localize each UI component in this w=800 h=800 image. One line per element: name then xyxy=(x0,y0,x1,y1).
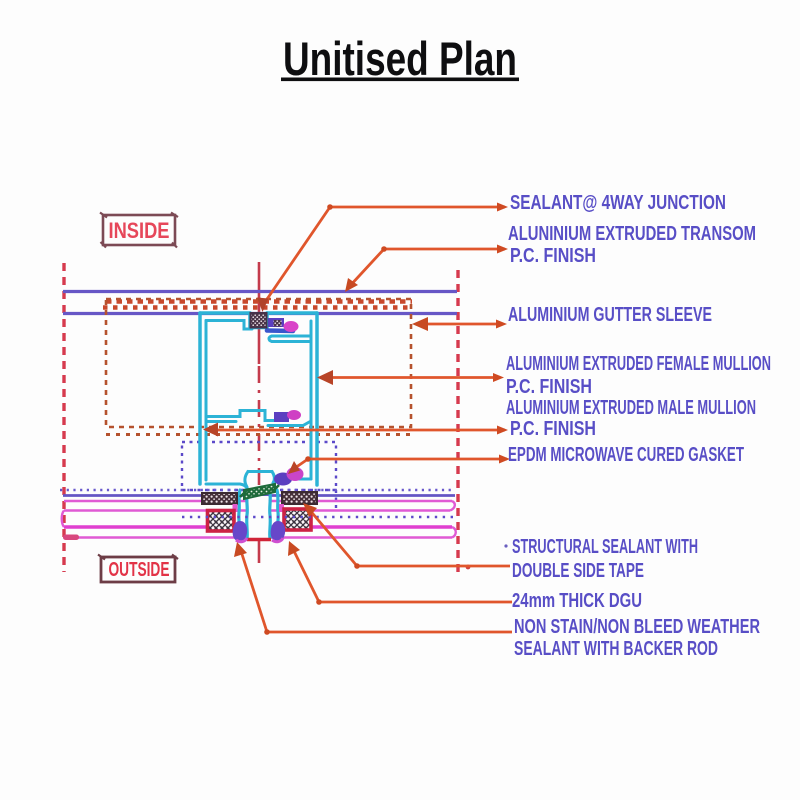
svg-text:P.C. FINISH: P.C. FINISH xyxy=(510,245,596,267)
svg-text:SEALANT WITH BACKER ROD: SEALANT WITH BACKER ROD xyxy=(514,638,718,660)
svg-text:ALUMINIUM GUTTER SLEEVE: ALUMINIUM GUTTER SLEEVE xyxy=(508,304,712,326)
svg-text:DOUBLE SIDE TAPE: DOUBLE SIDE TAPE xyxy=(512,560,644,582)
svg-text:NON STAIN/NON BLEED WEATHER: NON STAIN/NON BLEED WEATHER xyxy=(514,616,760,638)
svg-text:ALUMINIUM EXTRUDED MALE MULLIO: ALUMINIUM EXTRUDED MALE MULLION xyxy=(506,397,756,419)
svg-text:Unitised Plan: Unitised Plan xyxy=(283,32,517,85)
svg-text:EPDM MICROWAVE CURED GASKET: EPDM MICROWAVE CURED GASKET xyxy=(508,444,744,466)
svg-text:OUTSIDE: OUTSIDE xyxy=(109,559,170,581)
svg-text:24mm THICK DGU: 24mm THICK DGU xyxy=(512,590,642,612)
svg-text:ALUNINIUM EXTRUDED TRANSOM: ALUNINIUM EXTRUDED TRANSOM xyxy=(508,223,756,245)
svg-text:ALUMINIUM EXTRUDED FEMALE MULL: ALUMINIUM EXTRUDED FEMALE MULLION xyxy=(506,353,771,375)
svg-text:SEALANT@ 4WAY JUNCTION: SEALANT@ 4WAY JUNCTION xyxy=(510,192,726,214)
svg-text:P.C. FINISH: P.C. FINISH xyxy=(510,418,596,440)
svg-text:STRUCTURAL SEALANT WITH: STRUCTURAL SEALANT WITH xyxy=(512,536,698,558)
svg-text:INSIDE: INSIDE xyxy=(109,218,170,243)
svg-text:P.C. FINISH: P.C. FINISH xyxy=(506,376,592,398)
